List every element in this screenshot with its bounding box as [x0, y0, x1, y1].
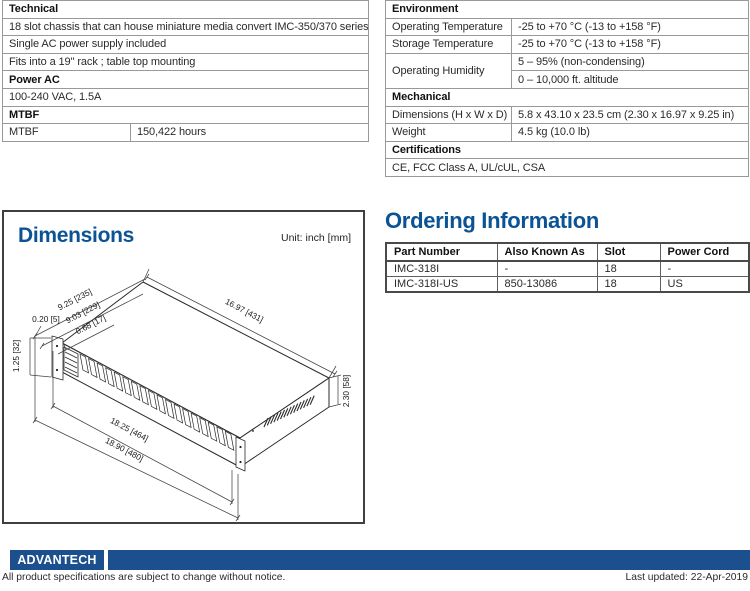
row-value: 5.8 x 43.10 x 23.5 cm (2.30 x 16.97 x 9.…	[512, 106, 749, 124]
advantech-logo: ADVANTECH	[10, 550, 104, 570]
section-header: Technical	[3, 1, 369, 19]
table-row: Fits into a 19" rack ; table top mountin…	[3, 53, 369, 71]
row-value: 150,422 hours	[131, 124, 369, 142]
screw-icon	[56, 345, 58, 347]
row-value: 4.5 kg (10.0 lb)	[512, 124, 749, 142]
power-cord-cell: -	[660, 261, 749, 277]
slot-cell: 18	[597, 277, 660, 293]
dim-label-step: 0.20 [5]	[32, 314, 60, 324]
left-mounting-ear	[52, 336, 63, 380]
right-mounting-ear	[236, 437, 245, 471]
row-text: CE, FCC Class A, UL/cUL, CSA	[386, 159, 749, 177]
table-row: Operating Humidity 5 – 95% (non-condensi…	[386, 53, 749, 71]
table-row: IMC-318I-US 850-13086 18 US	[386, 277, 749, 293]
row-text: Single AC power supply included	[3, 36, 369, 54]
row-label: Operating Temperature	[386, 18, 512, 36]
table-row: IMC-318I - 18 -	[386, 261, 749, 277]
part-number-cell: IMC-318I-US	[386, 277, 497, 293]
row-value: 0 – 10,000 ft. altitude	[512, 71, 749, 89]
part-number-cell: IMC-318I	[386, 261, 497, 277]
column-header: Also Known As	[497, 243, 597, 261]
row-value: -25 to +70 °C (-13 to +158 °F)	[512, 36, 749, 54]
table-row: Operating Temperature -25 to +70 °C (-13…	[386, 18, 749, 36]
table-row: MTBF 150,422 hours	[3, 124, 369, 142]
table-row: Single AC power supply included	[3, 36, 369, 54]
screw-icon	[239, 446, 241, 448]
table-row: Dimensions (H x W x D) 5.8 x 43.10 x 23.…	[386, 106, 749, 124]
row-value: -25 to +70 °C (-13 to +158 °F)	[512, 18, 749, 36]
row-value: 5 – 95% (non-condensing)	[512, 53, 749, 71]
section-header: Power AC	[3, 71, 369, 89]
dim-label-height: 2.30 [58]	[341, 375, 351, 407]
table-row: Power AC	[3, 71, 369, 89]
row-text: Fits into a 19" rack ; table top mountin…	[3, 53, 369, 71]
row-label: Storage Temperature	[386, 36, 512, 54]
row-label: Operating Humidity	[386, 53, 512, 88]
table-row: MTBF	[3, 106, 369, 124]
dimensions-box: Dimensions Unit: inch [mm]	[2, 210, 365, 524]
footer-updated: Last updated: 22-Apr-2019	[625, 572, 748, 583]
table-row: 100-240 VAC, 1.5A	[3, 88, 369, 106]
footer-bar	[108, 550, 750, 570]
footer-note: All product specifications are subject t…	[2, 572, 285, 583]
unit-label: Unit: inch [mm]	[281, 232, 351, 244]
column-header: Power Cord	[660, 243, 749, 261]
also-known-as-cell: -	[497, 261, 597, 277]
table-row: CE, FCC Class A, UL/cUL, CSA	[386, 159, 749, 177]
row-text: 18 slot chassis that can house miniature…	[3, 18, 369, 36]
table-row: 18 slot chassis that can house miniature…	[3, 18, 369, 36]
slot-cell: 18	[597, 261, 660, 277]
section-header: Mechanical	[386, 88, 749, 106]
screw-icon	[56, 369, 58, 371]
row-text: 100-240 VAC, 1.5A	[3, 88, 369, 106]
power-cord-cell: US	[660, 277, 749, 293]
ordering-title: Ordering Information	[385, 208, 599, 234]
environment-table: Environment Operating Temperature -25 to…	[385, 0, 749, 177]
screw-icon	[252, 430, 254, 432]
column-header: Slot	[597, 243, 660, 261]
column-header: Part Number	[386, 243, 497, 261]
technical-table: Technical 18 slot chassis that can house…	[2, 0, 369, 142]
screw-icon	[239, 461, 241, 463]
also-known-as-cell: 850-13086	[497, 277, 597, 293]
table-row: Storage Temperature -25 to +70 °C (-13 t…	[386, 36, 749, 54]
table-row: Weight 4.5 kg (10.0 lb)	[386, 124, 749, 142]
table-row: Environment	[386, 1, 749, 19]
row-label: Weight	[386, 124, 512, 142]
ordering-table: Part Number Also Known As Slot Power Cor…	[385, 242, 750, 293]
table-header-row: Part Number Also Known As Slot Power Cor…	[386, 243, 749, 261]
table-row: Technical	[3, 1, 369, 19]
dim-label-ear-height: 1.25 [32]	[11, 340, 21, 372]
dimension-drawing: 16.97 [431] 9.25 [235] 9.03 [229] 0.68 […	[6, 256, 364, 522]
table-row: Mechanical	[386, 88, 749, 106]
row-label: MTBF	[3, 124, 131, 142]
row-label: Dimensions (H x W x D)	[386, 106, 512, 124]
dimensions-title: Dimensions	[18, 224, 134, 248]
table-row: Certifications	[386, 141, 749, 159]
section-header: Environment	[386, 1, 749, 19]
section-header: MTBF	[3, 106, 369, 124]
section-header: Certifications	[386, 141, 749, 159]
